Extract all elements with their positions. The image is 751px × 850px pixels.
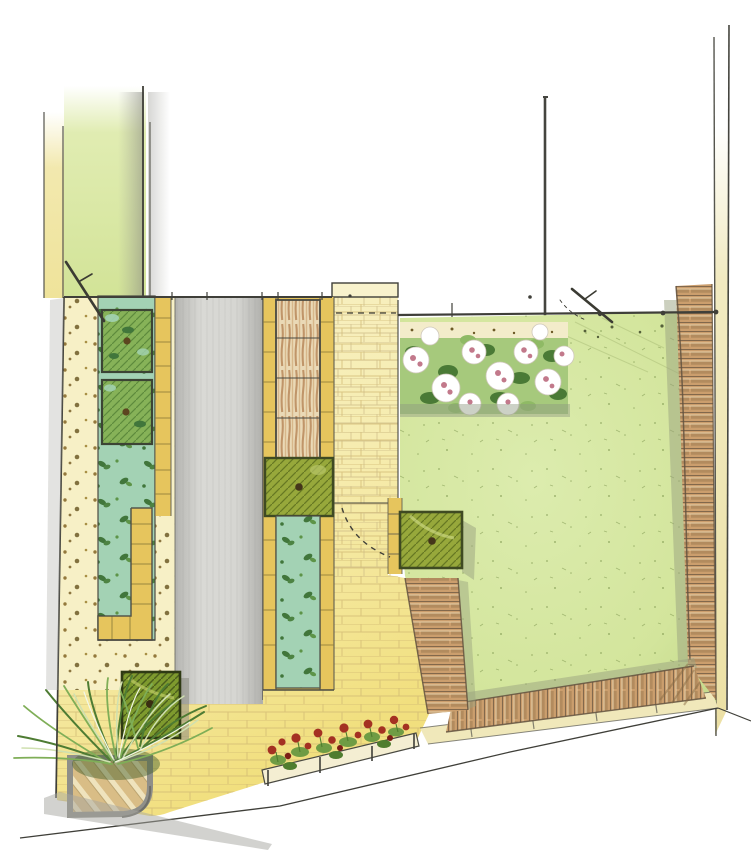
planter-shadow [462, 520, 476, 580]
box-square-2 [102, 380, 152, 444]
fence-shadow-inner [118, 92, 144, 298]
garden-plan-drawing [0, 0, 751, 850]
middle-planter-dot [295, 483, 303, 491]
concrete-path [175, 297, 263, 708]
middle-planter-highlight [310, 465, 326, 475]
neighbour-strip [44, 86, 170, 298]
box-square-1-highlight [105, 314, 119, 322]
dark-square-shadow [180, 678, 189, 740]
box-square-2-leaf [134, 421, 146, 428]
rose-bed [400, 322, 574, 417]
box-square-2-highlight [104, 384, 116, 391]
fence-shadow-outer [148, 92, 170, 298]
planter-dot [428, 537, 436, 545]
box-square-1-leaf2 [109, 353, 119, 359]
box-square-1 [102, 310, 152, 372]
middle-strip [263, 297, 334, 690]
right-outer-strip [714, 25, 730, 736]
l-path-vertical [131, 508, 152, 634]
path-threshold-step [332, 283, 398, 297]
box-square-1-leaf [122, 327, 134, 334]
willow-screen [276, 300, 320, 458]
neighbour-yellow-band [44, 112, 64, 298]
rose-bed-shadow [400, 404, 570, 417]
middle-square-planter [265, 458, 333, 516]
garden-plan-sheet [0, 0, 751, 850]
box-square-1-highlight2 [137, 348, 149, 355]
box-square-1-stem-dot [123, 337, 130, 344]
willow-screen-weave [276, 300, 320, 458]
box-square-2-stem-dot [122, 408, 129, 415]
edging-west-upper [155, 296, 171, 516]
teal-bed-middle-leaves [276, 516, 320, 688]
concrete-path-texture [175, 297, 263, 705]
